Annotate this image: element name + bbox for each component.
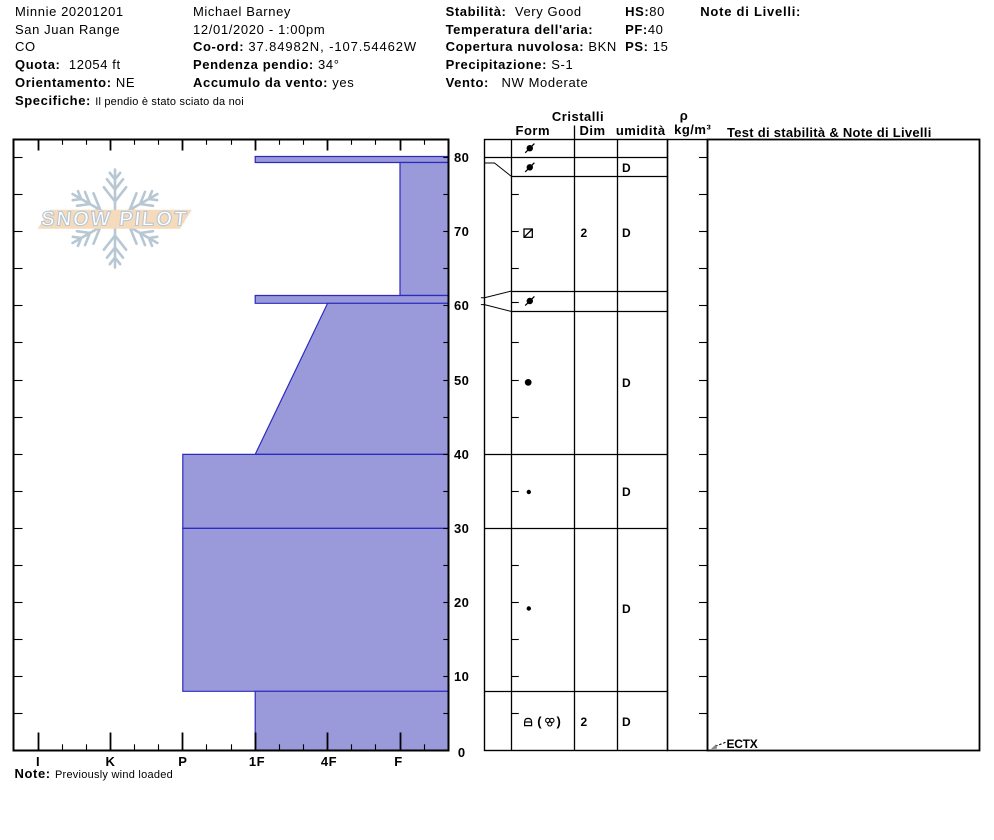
svg-text:): ) xyxy=(557,714,561,729)
svg-text:SNOW PILOT: SNOW PILOT xyxy=(40,208,189,231)
svg-text:(: ( xyxy=(537,714,542,729)
